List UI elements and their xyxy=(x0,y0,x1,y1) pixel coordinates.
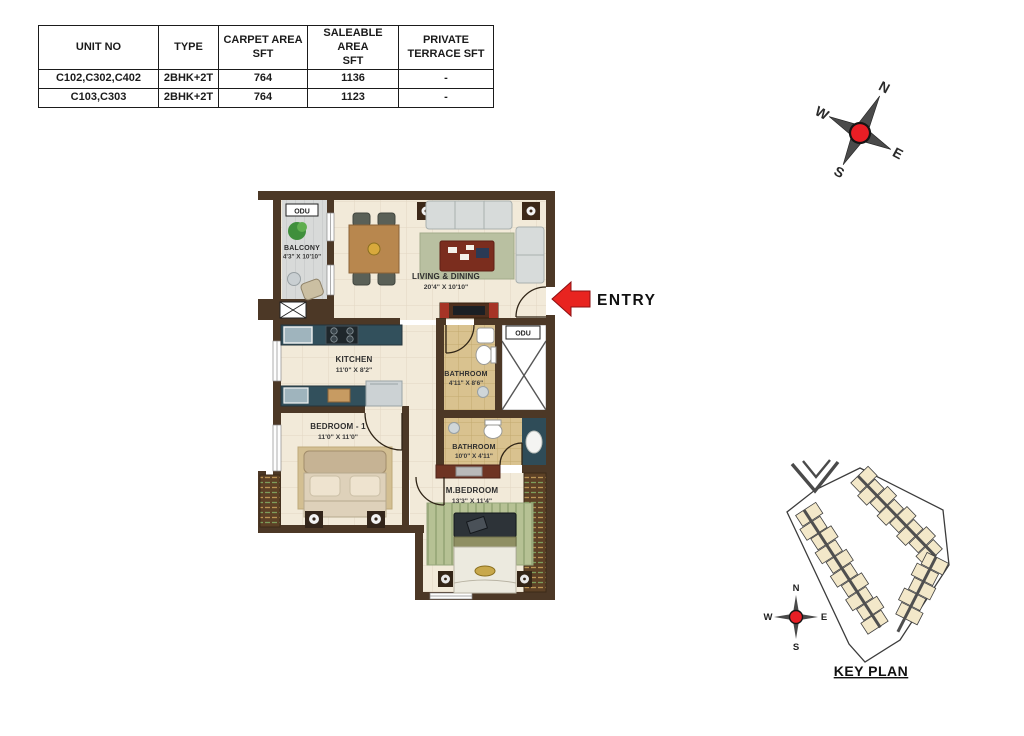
utility-box-icon xyxy=(280,302,306,318)
bed xyxy=(304,451,386,517)
compass-label-s: S xyxy=(793,642,799,653)
col-private-terrace: PRIVATE TERRACE SFT xyxy=(399,26,494,70)
stool-icon xyxy=(288,273,301,286)
washbasin-icon xyxy=(477,328,494,343)
toilet-icon xyxy=(484,424,502,439)
kitchen-dims: 11'0" X 8'2" xyxy=(336,367,373,374)
balcony-dims: 4'3" X 10'10" xyxy=(283,254,321,261)
unit-info-table: UNIT NO TYPE CARPET AREA SFT SALEABLE AR… xyxy=(38,25,494,108)
keyplan-title: KEY PLAN xyxy=(834,663,909,679)
bed xyxy=(454,513,516,593)
dresser-item xyxy=(456,467,482,476)
floorplan-page: UNIT NO TYPE CARPET AREA SFT SALEABLE AR… xyxy=(0,0,1024,736)
compass-label-n: N xyxy=(793,583,800,594)
mbedroom-dims: 13'3" X 11'4" xyxy=(452,498,492,505)
wardrobe xyxy=(260,475,280,527)
col-saleable-area: SALEABLE AREA SFT xyxy=(308,26,399,70)
living-dims: 20'4" X 10'10" xyxy=(424,284,468,291)
cutting-board xyxy=(328,389,350,402)
compass-label-e: E xyxy=(821,612,827,623)
tv-console xyxy=(440,303,498,318)
bathroom1-dims: 4'11" X 8'6" xyxy=(449,380,483,387)
odu-label: ODU xyxy=(515,331,531,338)
col-carpet-area: CARPET AREA SFT xyxy=(219,26,308,70)
shower-drain-icon xyxy=(478,387,489,398)
mbedroom-label: M.BEDROOM xyxy=(446,486,499,495)
bathroom2-label: BATHROOM xyxy=(452,442,495,451)
table-header-row: UNIT NO TYPE CARPET AREA SFT SALEABLE AR… xyxy=(39,26,494,70)
table-row: C102,C302,C402 2BHK+2T 764 1136 - xyxy=(39,70,494,89)
toilet-icon xyxy=(476,346,492,365)
compass-label-e: E xyxy=(890,144,906,163)
col-type: TYPE xyxy=(159,26,219,70)
entry-label: ENTRY xyxy=(597,292,656,309)
key-plan: N E S W KEY PLAN xyxy=(752,448,997,688)
shower-drain-icon xyxy=(449,423,460,434)
floor-plan: ODU ODU BALCONY 4'3" X 10'10" LIVING & D… xyxy=(250,175,660,625)
toilet-tank xyxy=(491,347,496,363)
odu-label: ODU xyxy=(294,209,310,216)
balcony-label: BALCONY xyxy=(284,245,320,252)
entry-arrow-icon xyxy=(552,282,590,316)
toilet-tank xyxy=(485,420,501,425)
washbasin-icon xyxy=(526,431,542,453)
bathroom2-dims: 10'0" X 4'11" xyxy=(455,453,493,460)
sink-icon xyxy=(284,388,308,403)
road-chevron-icon xyxy=(803,460,830,477)
bedroom1-label: BEDROOM - 1 xyxy=(310,422,366,431)
north-compass: N E S W xyxy=(793,75,938,200)
bedroom1-dims: 11'0" X 11'0" xyxy=(318,434,358,441)
kitchen-label: KITCHEN xyxy=(336,355,373,364)
compass-center xyxy=(790,611,803,624)
compass-label-w: W xyxy=(764,612,773,623)
keyplan-compass: N E S W xyxy=(764,583,828,653)
compass-label-n: N xyxy=(876,78,892,97)
living-label: LIVING & DINING xyxy=(412,272,480,281)
fridge-icon xyxy=(366,381,402,406)
plant-icon xyxy=(297,222,307,232)
compass-label-w: W xyxy=(812,103,832,124)
col-unit-no: UNIT NO xyxy=(39,26,159,70)
bathroom1-label: BATHROOM xyxy=(444,369,487,378)
table-row: C103,C303 2BHK+2T 764 1123 - xyxy=(39,89,494,108)
compass-label-s: S xyxy=(831,163,847,182)
stove-icon xyxy=(326,326,358,344)
sink-icon xyxy=(284,327,312,343)
